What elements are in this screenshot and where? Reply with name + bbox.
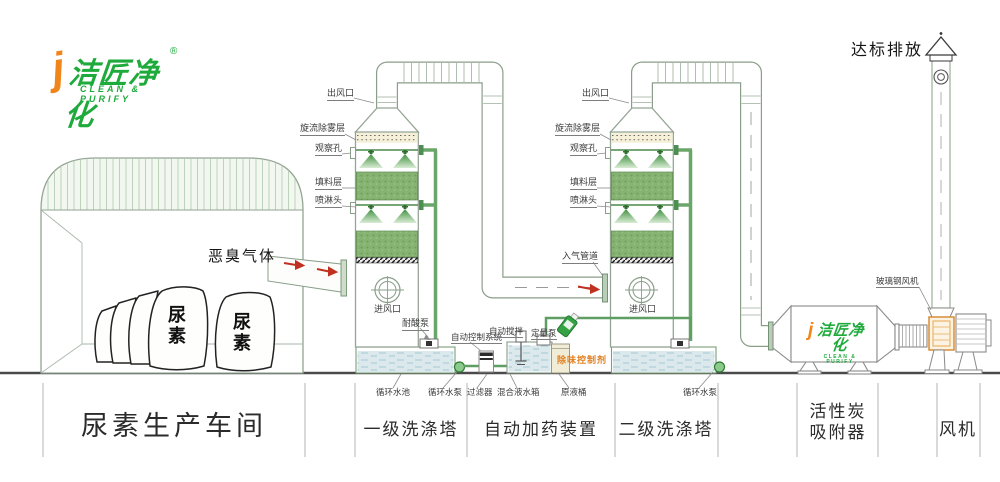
tower1-demister-label: 旋流除雾层 — [300, 124, 345, 136]
exhaust-stack — [926, 32, 956, 308]
support-grid-1 — [356, 258, 417, 264]
tower1-pump-label: 循环水泵 — [428, 388, 462, 397]
tower2-inlet-pipe-label: 入气管道 — [562, 252, 598, 264]
tower2-viewport-label: 观察孔 — [570, 144, 597, 156]
support-grid-2 — [611, 258, 672, 264]
process-flow-diagram: j 洁匠净化 ® CLEAN & PURIFY 达标排放 恶臭气体 尿素 尿素 … — [0, 0, 1000, 482]
dosing-agent-label: 除味控制剂 — [557, 356, 607, 365]
logo-monogram: j — [49, 43, 68, 94]
viewport-tab-2a — [606, 148, 611, 159]
tower1-outlet-label: 出风口 — [327, 89, 354, 101]
circulation-pump-1 — [455, 362, 465, 372]
tower1-hood — [356, 108, 419, 132]
scrubber-tower-2 — [606, 108, 725, 373]
demister-layer-2 — [611, 133, 672, 143]
adsorber-logo: j 洁匠净化 CLEAN & PURIFY — [812, 323, 868, 365]
urea-bag-text-2: 尿素 — [232, 312, 250, 354]
spray-pipe-2 — [674, 145, 692, 341]
tower1-acid-pump-label: 耐酸泵 — [402, 319, 429, 331]
viewport-tab-1b — [351, 203, 356, 214]
tower2-spray-label: 喷淋头 — [570, 196, 597, 208]
fan-motor — [956, 314, 991, 352]
fan-base — [925, 350, 982, 374]
circulation-pump-2 — [715, 362, 725, 372]
flex-connector — [899, 325, 927, 347]
demister-layer-1 — [356, 133, 417, 143]
scrubber-tower-1 — [351, 108, 465, 373]
tower2-inlet-label: 进风口 — [629, 305, 656, 314]
spray-pipe-1 — [419, 145, 437, 341]
dosing-filter — [479, 351, 494, 372]
tower1-inlet-label: 进风口 — [374, 305, 401, 314]
acid-pump-2 — [671, 339, 689, 348]
dosing-mix-tank-label: 混合液水箱 — [497, 388, 540, 397]
tower1-packing-label: 填料层 — [315, 178, 342, 190]
viewport-tab-1a — [351, 148, 356, 159]
dosing-stirrer-label: 自动搅拌 — [489, 327, 523, 338]
section-workshop: 尿素生产车间 — [81, 413, 267, 440]
company-logo: j 洁匠净化 ® CLEAN & PURIFY — [52, 48, 182, 98]
registered-mark: ® — [170, 46, 177, 57]
section-tower2: 二级洗涤塔 — [619, 421, 714, 438]
agent-bottle — [557, 311, 581, 337]
dosing-metering-label: 定量泵 — [531, 329, 557, 340]
adsorber-logo-brand: 洁匠净化 — [810, 323, 869, 353]
dosing-barrel-label: 原液桶 — [561, 388, 587, 397]
section-tower1: 一级洗涤塔 — [364, 421, 459, 438]
packing-layer-2a — [611, 172, 672, 200]
tower1-pool-label: 循环水池 — [376, 388, 410, 397]
tower1-spray-label: 喷淋头 — [315, 196, 342, 208]
tower2-hood — [611, 108, 674, 132]
section-dosing: 自动加药装置 — [484, 421, 598, 438]
emission-label: 达标排放 — [851, 43, 923, 59]
section-adsorber-line1: 活性炭 — [810, 403, 867, 420]
rain-cap — [926, 37, 956, 55]
viewport-tab-2b — [606, 203, 611, 214]
frp-fan-label: 玻璃钢风机 — [876, 277, 919, 288]
packing-layer-2b — [611, 231, 672, 257]
section-fan: 风机 — [939, 421, 977, 438]
odor-gas-label: 恶臭气体 — [208, 249, 276, 264]
frp-fan — [925, 308, 991, 374]
tower2-outlet-label: 出风口 — [582, 89, 609, 101]
tower2-pump-label: 循环水泵 — [683, 388, 717, 397]
adsorber-logo-tagline: CLEAN & PURIFY — [812, 355, 868, 365]
tower2-packing-label: 填料层 — [570, 178, 597, 190]
logo-tagline: CLEAN & PURIFY — [80, 84, 182, 104]
stack-port — [934, 70, 948, 84]
tower1-viewport-label: 观察孔 — [315, 144, 342, 156]
packing-layer-1a — [356, 172, 417, 200]
dosing-filter-label: 过滤器 — [467, 388, 493, 397]
section-adsorber-line2: 吸附器 — [810, 424, 867, 441]
tower2-demister-label: 旋流除雾层 — [555, 124, 600, 136]
mixing-tank — [507, 342, 552, 373]
packing-layer-1b — [356, 231, 417, 257]
urea-bag-text-1: 尿素 — [167, 305, 185, 347]
acid-pump-1 — [420, 339, 438, 348]
